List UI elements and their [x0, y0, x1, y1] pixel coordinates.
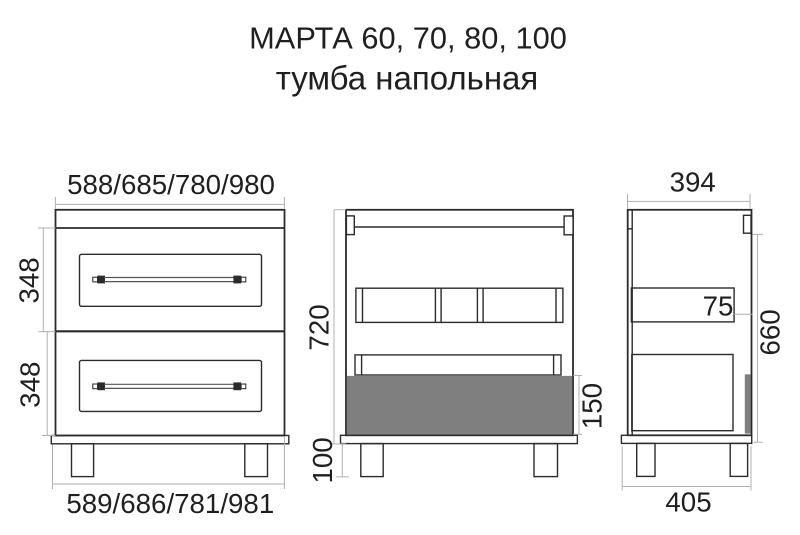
svg-text:МАРТА 60, 70, 80, 100: МАРТА 60, 70, 80, 100	[249, 21, 567, 56]
svg-text:150: 150	[576, 383, 607, 429]
svg-text:588/685/780/980: 588/685/780/980	[67, 169, 275, 200]
svg-text:75: 75	[703, 291, 734, 322]
svg-text:тумба напольная: тумба напольная	[276, 59, 539, 96]
svg-text:348: 348	[14, 362, 45, 408]
svg-text:405: 405	[665, 487, 711, 518]
svg-text:394: 394	[670, 167, 716, 198]
svg-text:348: 348	[14, 257, 45, 303]
svg-text:100: 100	[307, 437, 338, 483]
svg-text:589/686/781/981: 589/686/781/981	[66, 488, 274, 519]
svg-text:660: 660	[754, 309, 785, 355]
svg-text:720: 720	[304, 304, 335, 350]
